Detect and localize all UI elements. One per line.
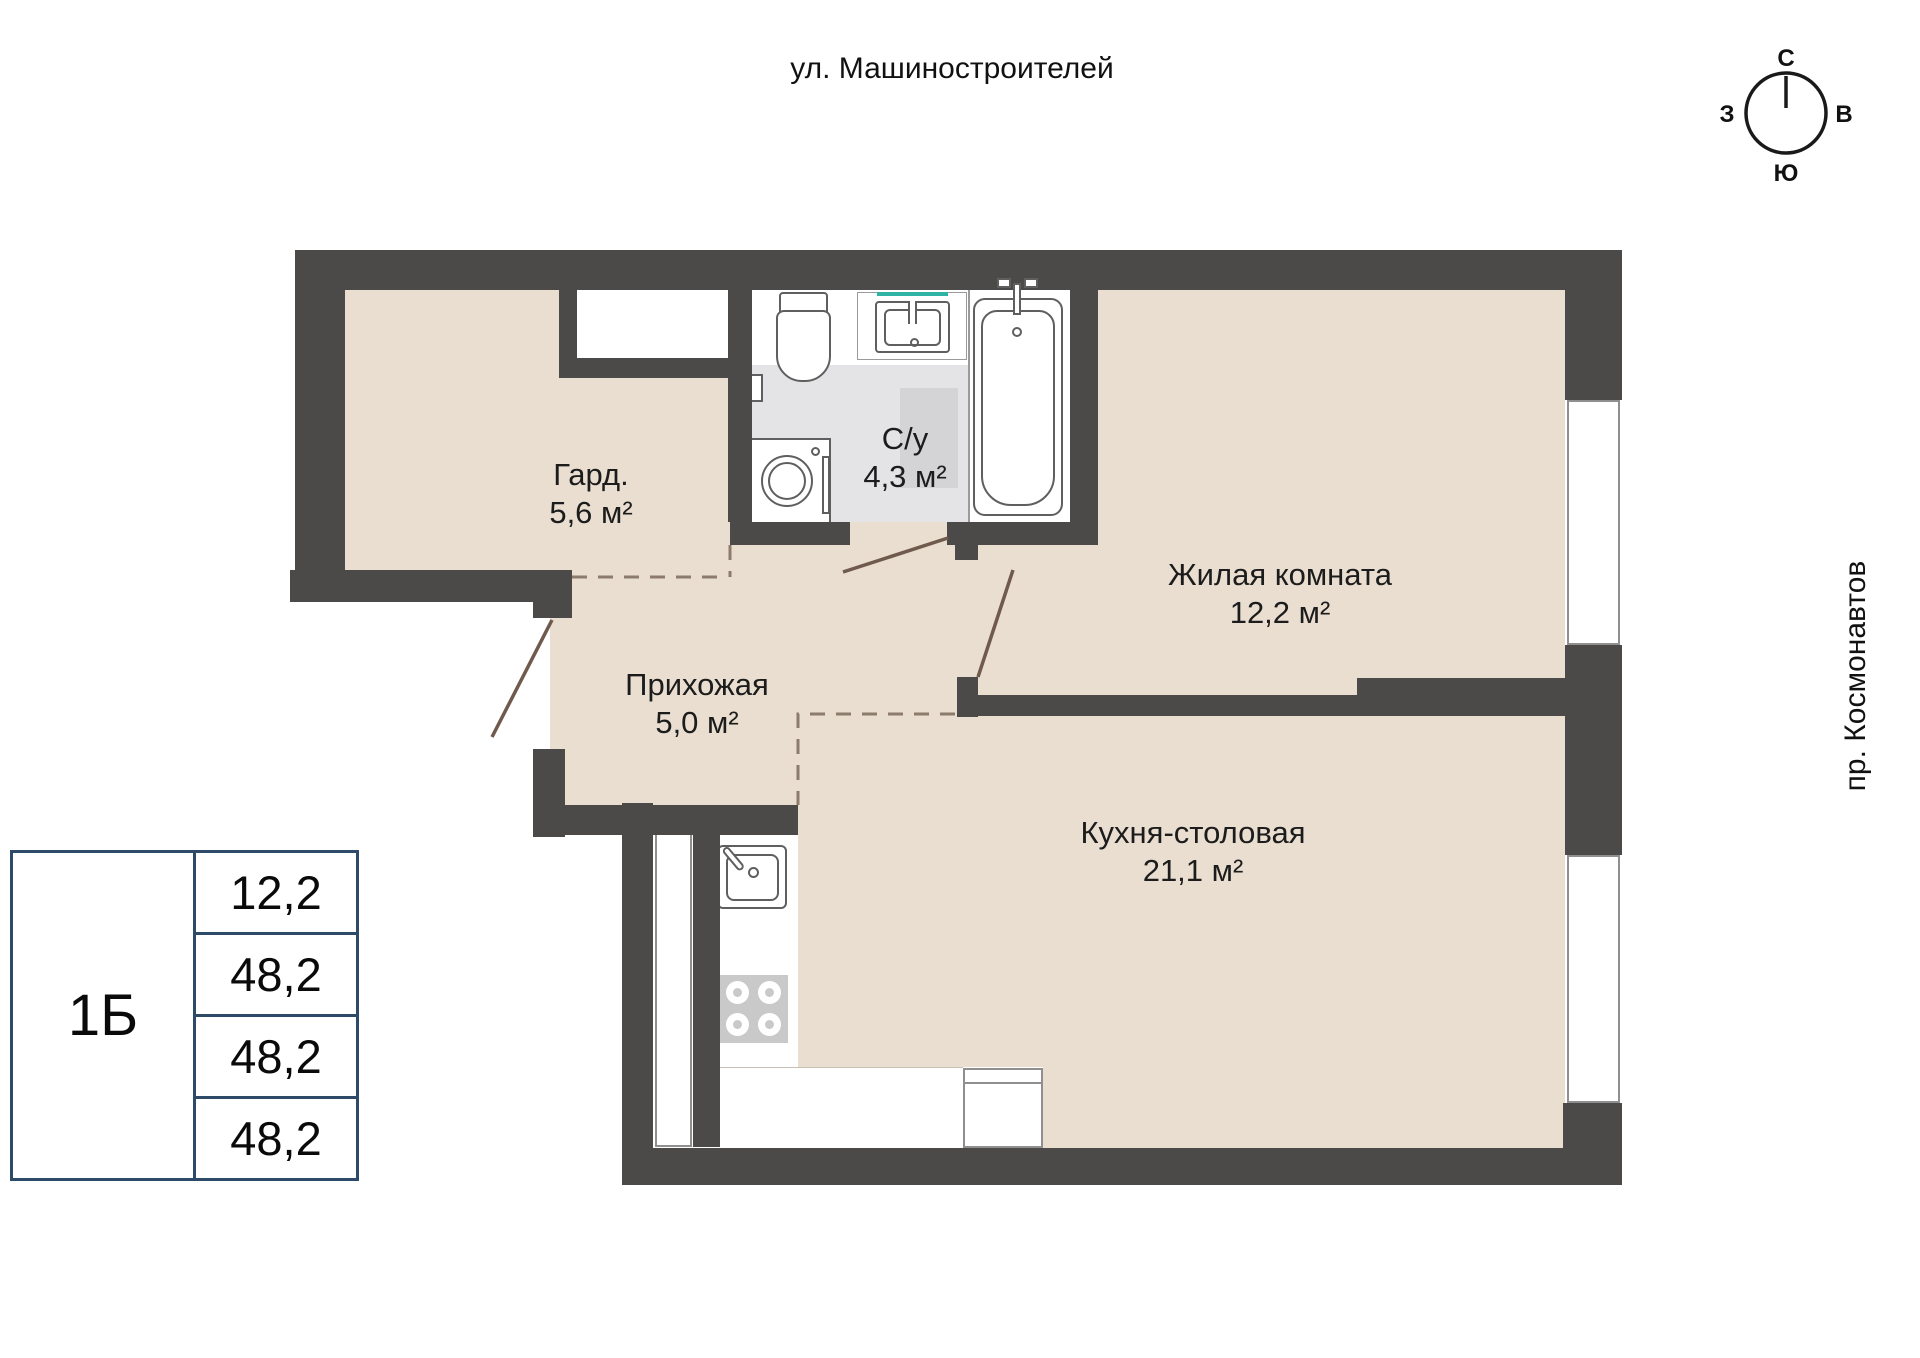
wall (1565, 250, 1622, 400)
table-row: 48,2 (196, 1099, 356, 1178)
stove-burner (726, 981, 749, 1004)
room-name: Гард. (549, 456, 632, 494)
floor-kitchen (798, 716, 1565, 1067)
room-name: Кухня-столовая (1080, 814, 1305, 852)
wall (295, 250, 345, 602)
wall (1070, 290, 1098, 545)
window-living-room (1567, 400, 1620, 645)
window-kitchen-left (655, 822, 692, 1147)
stove-burner (758, 981, 781, 1004)
wall (622, 1148, 1565, 1185)
wall (533, 749, 565, 837)
table-row: 48,2 (196, 935, 356, 1017)
wall (1357, 678, 1565, 716)
street-label-top: ул. Машиностроителей (790, 52, 1114, 86)
street-label-right: пр. Космонавтов (1839, 561, 1873, 792)
room-label-living-room: Жилая комната 12,2 м² (1168, 556, 1392, 632)
floorplan-page: ул. Машиностроителей С Ю З В пр. Космона… (0, 0, 1920, 1358)
wall (955, 545, 978, 560)
wall (622, 803, 653, 1182)
bathtub-drain (1012, 327, 1022, 337)
table-row: 48,2 (196, 1017, 356, 1099)
bathtub-faucet (1013, 283, 1021, 315)
room-area: 5,6 м² (549, 494, 632, 532)
room-label-hallway: Прихожая 5,0 м² (625, 666, 769, 742)
compass-west-label: З (1719, 101, 1734, 128)
table-row: 12,2 (196, 853, 356, 935)
bath-counter-accent (877, 292, 948, 296)
wall (559, 358, 728, 378)
wall (1563, 1103, 1622, 1185)
compass-south-label: Ю (1774, 160, 1799, 187)
wall (1565, 645, 1622, 855)
room-name: С/у (863, 420, 946, 458)
room-area: 4,3 м² (863, 458, 946, 496)
wall (957, 677, 978, 717)
washing-machine-button (811, 447, 820, 456)
wall (978, 695, 1357, 716)
floor-living-doorway (957, 543, 1098, 695)
fridge-divider (963, 1082, 1043, 1084)
door-swing-entrance (492, 620, 552, 737)
bathtub-tap-right (1024, 278, 1038, 288)
kitchen-sink-drain (748, 867, 759, 878)
wall (290, 570, 533, 602)
wardrobe-niche (577, 290, 728, 358)
wall (533, 805, 798, 835)
room-area: 12,2 м² (1168, 594, 1392, 632)
stove-burner (726, 1013, 749, 1036)
unit-values: 12,2 48,2 48,2 48,2 (196, 853, 356, 1178)
window-kitchen (1567, 855, 1620, 1103)
toilet (776, 310, 831, 382)
compass-icon: С Ю З В (1700, 30, 1875, 195)
room-label-bathroom: С/у 4,3 м² (863, 420, 946, 496)
room-area: 5,0 м² (625, 704, 769, 742)
wall (693, 820, 720, 1147)
wall (728, 290, 752, 522)
room-area: 21,1 м² (1080, 852, 1305, 890)
compass-east-label: В (1835, 101, 1852, 128)
compass-north-label: С (1777, 45, 1794, 72)
unit-id: 1Б (13, 853, 196, 1178)
bathtub-tap-left (997, 278, 1011, 288)
bathroom-sink-faucet (908, 301, 917, 324)
wall (533, 570, 572, 618)
stove-burner (758, 1013, 781, 1036)
washing-machine-panel (822, 456, 830, 514)
kitchen-counter-bottom (712, 1067, 963, 1149)
bathroom-sink-drain (910, 338, 919, 347)
floor-living-room (1098, 290, 1565, 695)
fridge (963, 1068, 1043, 1148)
floor-kitchen-bottom (1043, 1067, 1565, 1150)
wall (730, 522, 850, 545)
bathtub-inner (981, 310, 1055, 506)
unit-info-table: 1Б 12,2 48,2 48,2 48,2 (10, 850, 359, 1181)
room-name: Жилая комната (1168, 556, 1392, 594)
room-label-kitchen: Кухня-столовая 21,1 м² (1080, 814, 1305, 890)
stove (720, 975, 788, 1043)
wall (295, 250, 1622, 290)
room-label-wardrobe: Гард. 5,6 м² (549, 456, 632, 532)
wall (947, 522, 1087, 545)
washing-machine-drum-inner (768, 462, 806, 500)
room-name: Прихожая (625, 666, 769, 704)
